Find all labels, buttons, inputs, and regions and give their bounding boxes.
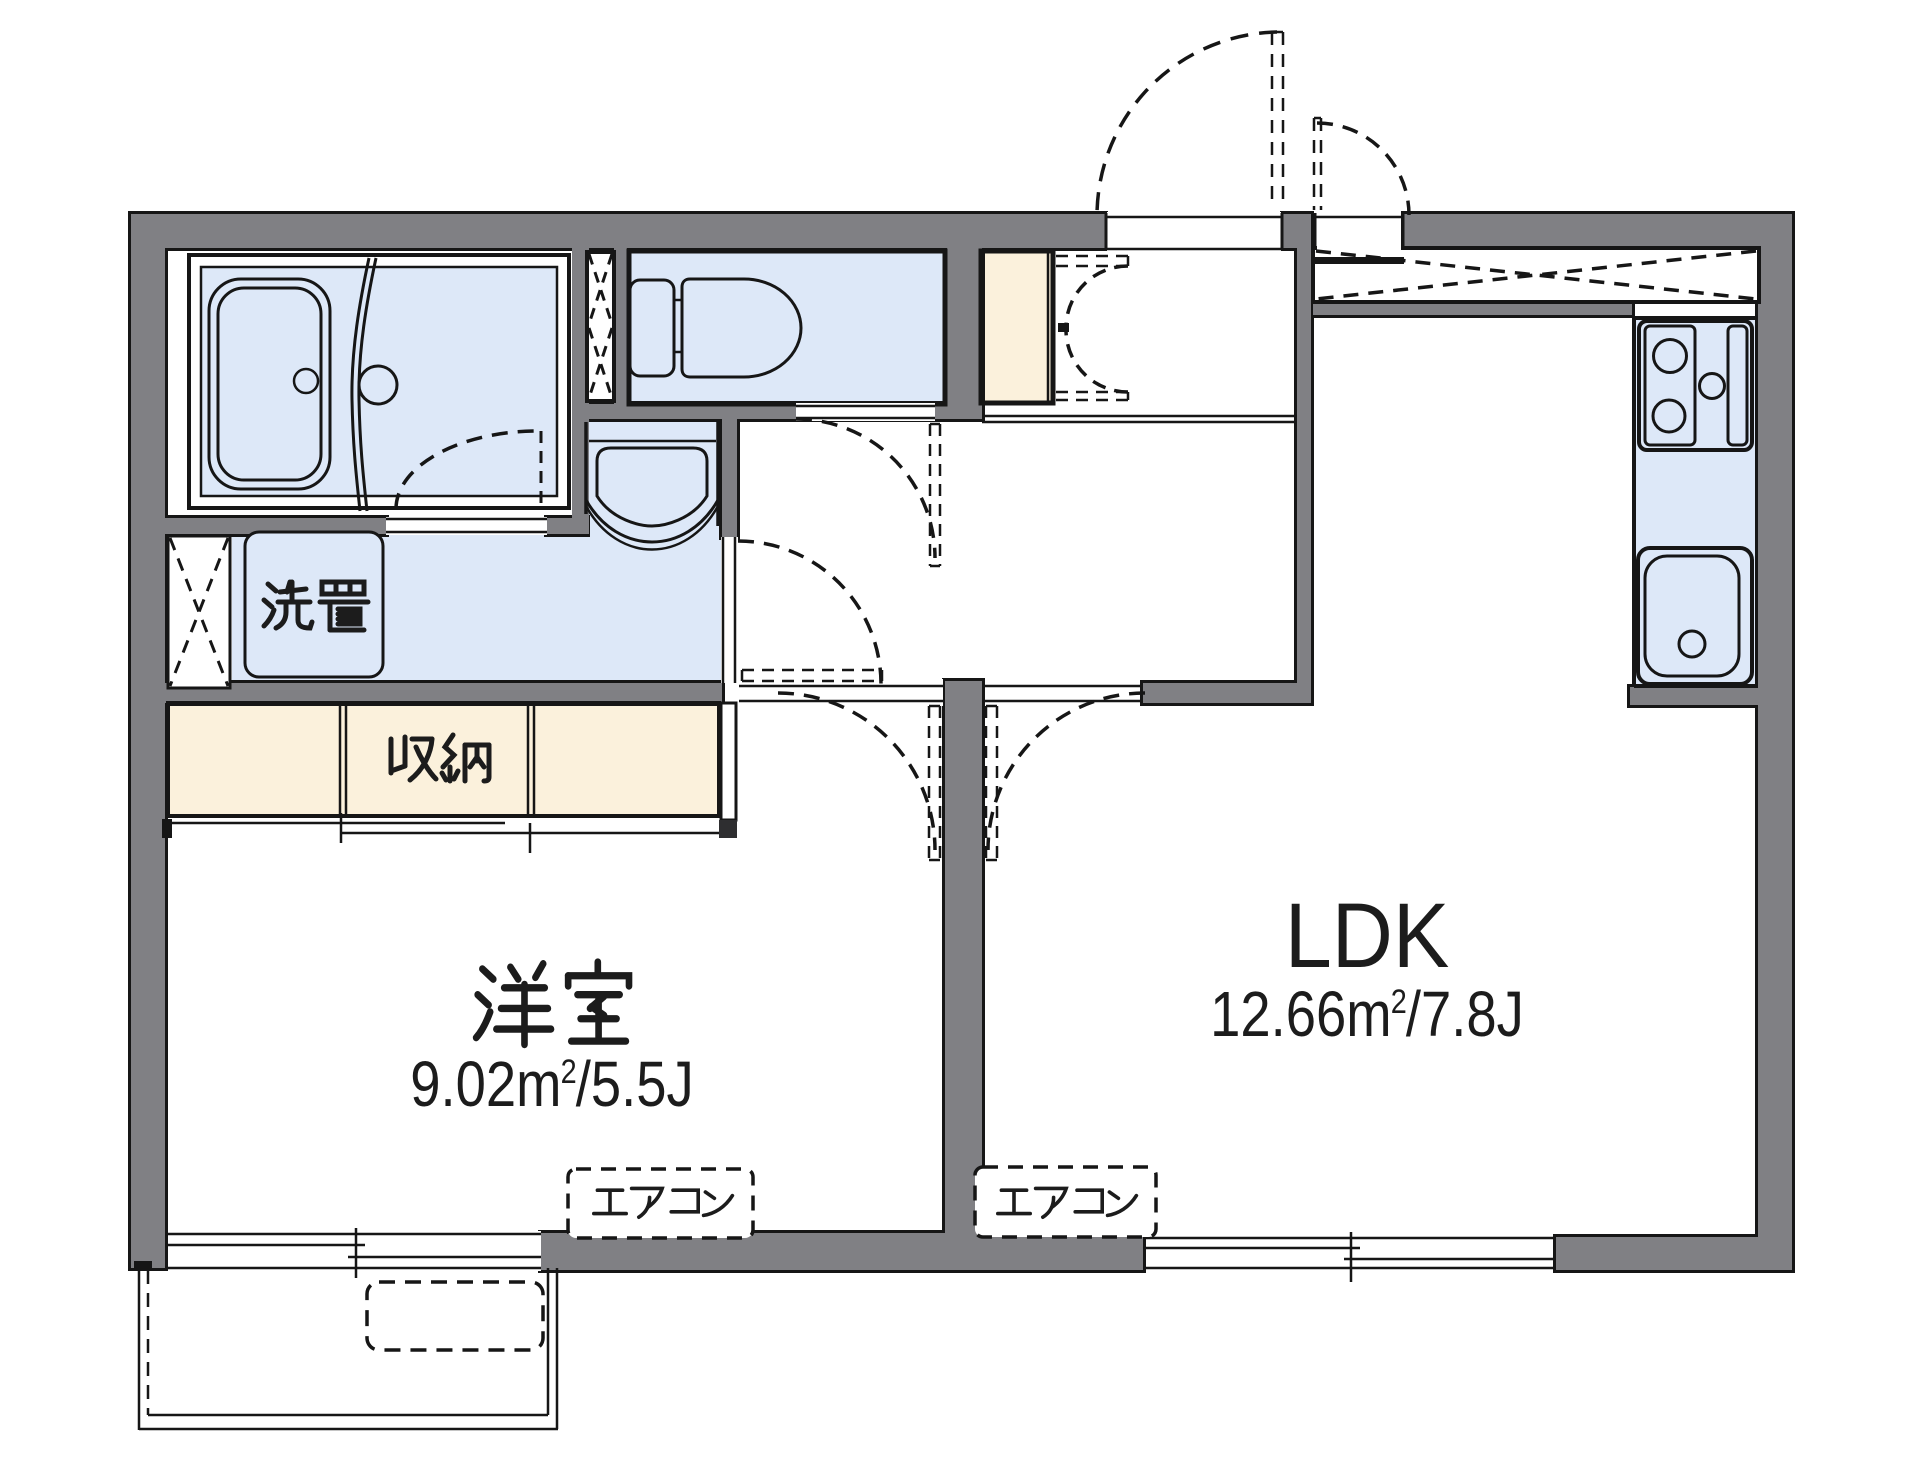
svg-text:9.02m2/5.5J: 9.02m2/5.5J xyxy=(410,1048,693,1120)
svg-text:12.66m2/7.8J: 12.66m2/7.8J xyxy=(1210,978,1524,1050)
svg-text:LDK: LDK xyxy=(1285,884,1450,987)
